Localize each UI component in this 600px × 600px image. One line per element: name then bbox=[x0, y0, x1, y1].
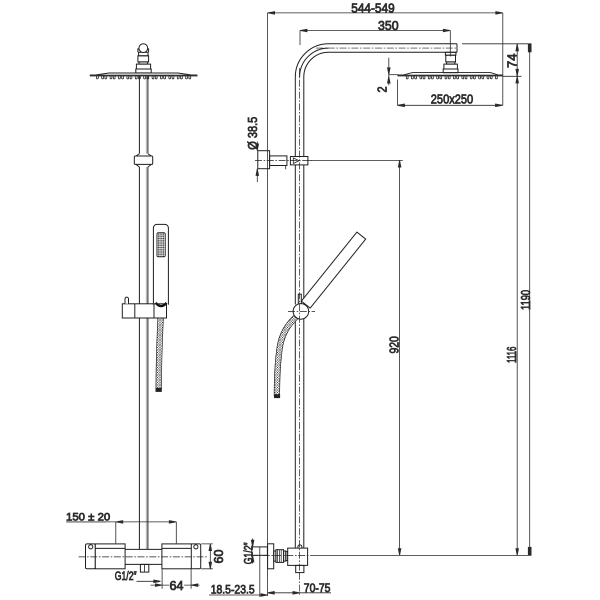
svg-text:920: 920 bbox=[388, 336, 402, 354]
svg-text:74: 74 bbox=[504, 54, 519, 68]
svg-text:350: 350 bbox=[378, 19, 399, 33]
svg-text:64: 64 bbox=[170, 579, 184, 593]
svg-text:544-549: 544-549 bbox=[351, 1, 394, 16]
svg-text:60: 60 bbox=[212, 550, 226, 564]
svg-text:G1/2″: G1/2″ bbox=[115, 571, 137, 584]
svg-text:2: 2 bbox=[375, 86, 390, 92]
svg-text:70-75: 70-75 bbox=[304, 583, 331, 596]
svg-text:1190: 1190 bbox=[520, 290, 534, 310]
svg-text:Ø 38.5: Ø 38.5 bbox=[245, 116, 260, 149]
svg-text:18.5-23.5: 18.5-23.5 bbox=[211, 584, 255, 597]
svg-text:250x250: 250x250 bbox=[431, 92, 474, 107]
svg-text:1116: 1116 bbox=[505, 347, 519, 363]
